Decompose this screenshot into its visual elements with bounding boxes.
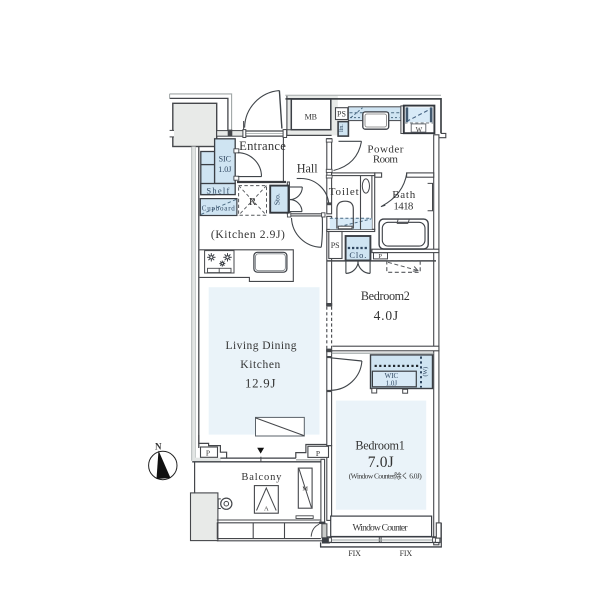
svg-text:M: M: [302, 486, 308, 493]
svg-text:N: N: [155, 441, 162, 451]
svg-text:P: P: [378, 253, 382, 260]
svg-text:Bedroom2: Bedroom2: [361, 289, 410, 303]
svg-text:MB: MB: [305, 113, 317, 122]
svg-text:PS: PS: [337, 110, 346, 119]
svg-text:FIX: FIX: [348, 549, 361, 558]
svg-text:P: P: [206, 448, 210, 457]
svg-text:Bath: Bath: [392, 189, 416, 201]
svg-text:Room: Room: [373, 154, 398, 166]
svg-text:Sto.: Sto.: [272, 193, 281, 205]
svg-text:W: W: [416, 126, 423, 134]
svg-text:WIC: WIC: [385, 372, 399, 380]
svg-text:FIX: FIX: [400, 549, 413, 558]
svg-text:Balcony: Balcony: [241, 472, 282, 483]
svg-text:(Kitchen 2.9J): (Kitchen 2.9J): [211, 229, 285, 241]
svg-text:1418: 1418: [393, 201, 414, 213]
svg-text:(W): (W): [422, 367, 429, 377]
svg-text:P: P: [316, 449, 320, 458]
svg-text:1.0J: 1.0J: [218, 165, 231, 174]
svg-text:R: R: [249, 196, 257, 208]
svg-text:4.0J: 4.0J: [374, 308, 399, 323]
svg-text:Shelf: Shelf: [206, 185, 229, 195]
svg-text:12.9J: 12.9J: [245, 377, 276, 391]
svg-text:7.0J: 7.0J: [368, 454, 394, 471]
svg-text:1.0J: 1.0J: [386, 380, 398, 388]
svg-text:Toilet: Toilet: [329, 186, 359, 198]
svg-text:(Window Counter除く 6.0J): (Window Counter除く 6.0J): [349, 471, 423, 481]
svg-text:SIC: SIC: [219, 155, 231, 164]
svg-text:Window Counter: Window Counter: [353, 524, 409, 534]
svg-text:Cupboard: Cupboard: [202, 205, 236, 213]
svg-text:A: A: [264, 506, 269, 513]
svg-text:Living Dining: Living Dining: [226, 340, 297, 352]
svg-text:Hall: Hall: [297, 162, 319, 176]
svg-text:PS: PS: [331, 241, 340, 250]
svg-text:Bedroom1: Bedroom1: [355, 438, 405, 452]
svg-text:Entrance: Entrance: [239, 139, 286, 153]
svg-text:lin.: lin.: [339, 124, 345, 132]
svg-text:Kitchen: Kitchen: [240, 359, 280, 371]
svg-text:Clo.: Clo.: [349, 250, 366, 260]
